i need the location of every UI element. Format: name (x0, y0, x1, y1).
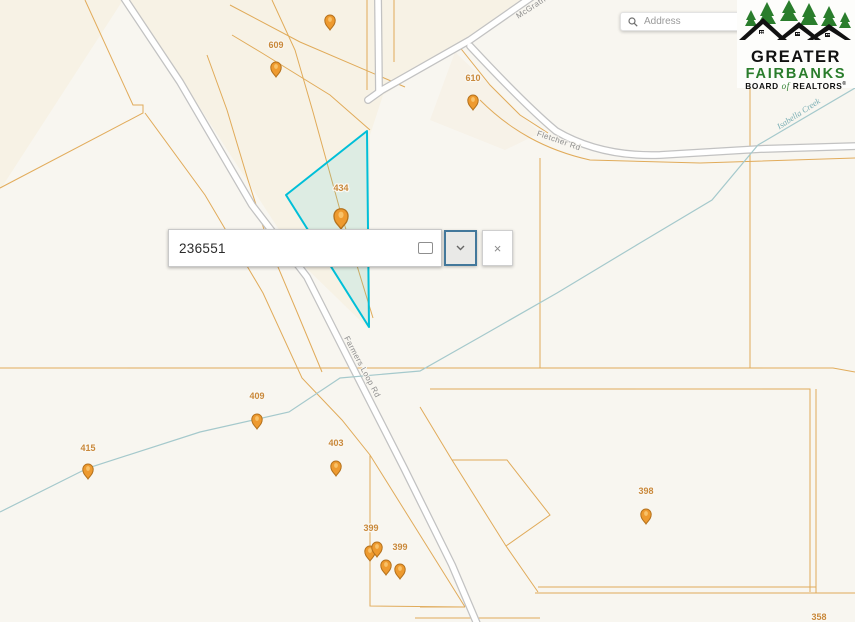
chevron-down-icon (456, 245, 465, 251)
creek-label: Isabella Creek (774, 96, 822, 132)
logo-line-fairbanks: FAIRBANKS (737, 67, 855, 82)
lookup-dropdown-button[interactable] (444, 230, 477, 266)
address-search[interactable]: Address (620, 12, 751, 31)
parcel-number-label: 358 (811, 612, 826, 622)
member-number-value: 236551 (179, 241, 418, 256)
parcel-pin[interactable] (83, 464, 93, 479)
gfbr-logo-art (737, 0, 855, 44)
member-number-input[interactable]: 236551 (168, 229, 442, 267)
parcel-lines (0, 0, 855, 618)
parcel-pin[interactable] (381, 560, 391, 575)
parcel-number-label: 399 (363, 523, 378, 533)
lookup-close-button[interactable]: × (482, 230, 513, 266)
parcel-number-label: 434 (333, 183, 348, 193)
logo-line-greater: GREATER (737, 49, 855, 66)
parcel-number-label: 415 (80, 443, 95, 453)
parcel-number-label: 409 (249, 391, 264, 401)
extent-checkbox-icon[interactable] (418, 242, 433, 254)
parcel-pin[interactable] (252, 414, 262, 429)
parcel-pin[interactable] (331, 461, 341, 476)
parcel-pin[interactable] (395, 564, 405, 579)
member-lookup-widget: 236551 × (168, 229, 513, 267)
parcel-number-label: 403 (328, 438, 343, 448)
parcel-number-label: 609 (268, 40, 283, 50)
parcel-map[interactable]: Farmers Loop RdFletcher RdMcGrath RdIsab… (0, 0, 855, 622)
parcel-number-label: 398 (638, 486, 653, 496)
logo-line-board: BOARD of REALTORS® (737, 82, 855, 91)
parcel-pin[interactable] (641, 509, 651, 524)
search-icon (628, 17, 638, 27)
gfbr-logo: GREATER FAIRBANKS BOARD of REALTORS® (737, 0, 855, 88)
address-search-placeholder: Address (644, 16, 681, 27)
close-icon: × (494, 241, 502, 256)
parcel-number-label: 399 (392, 542, 407, 552)
parcel-number-label: 610 (465, 73, 480, 83)
